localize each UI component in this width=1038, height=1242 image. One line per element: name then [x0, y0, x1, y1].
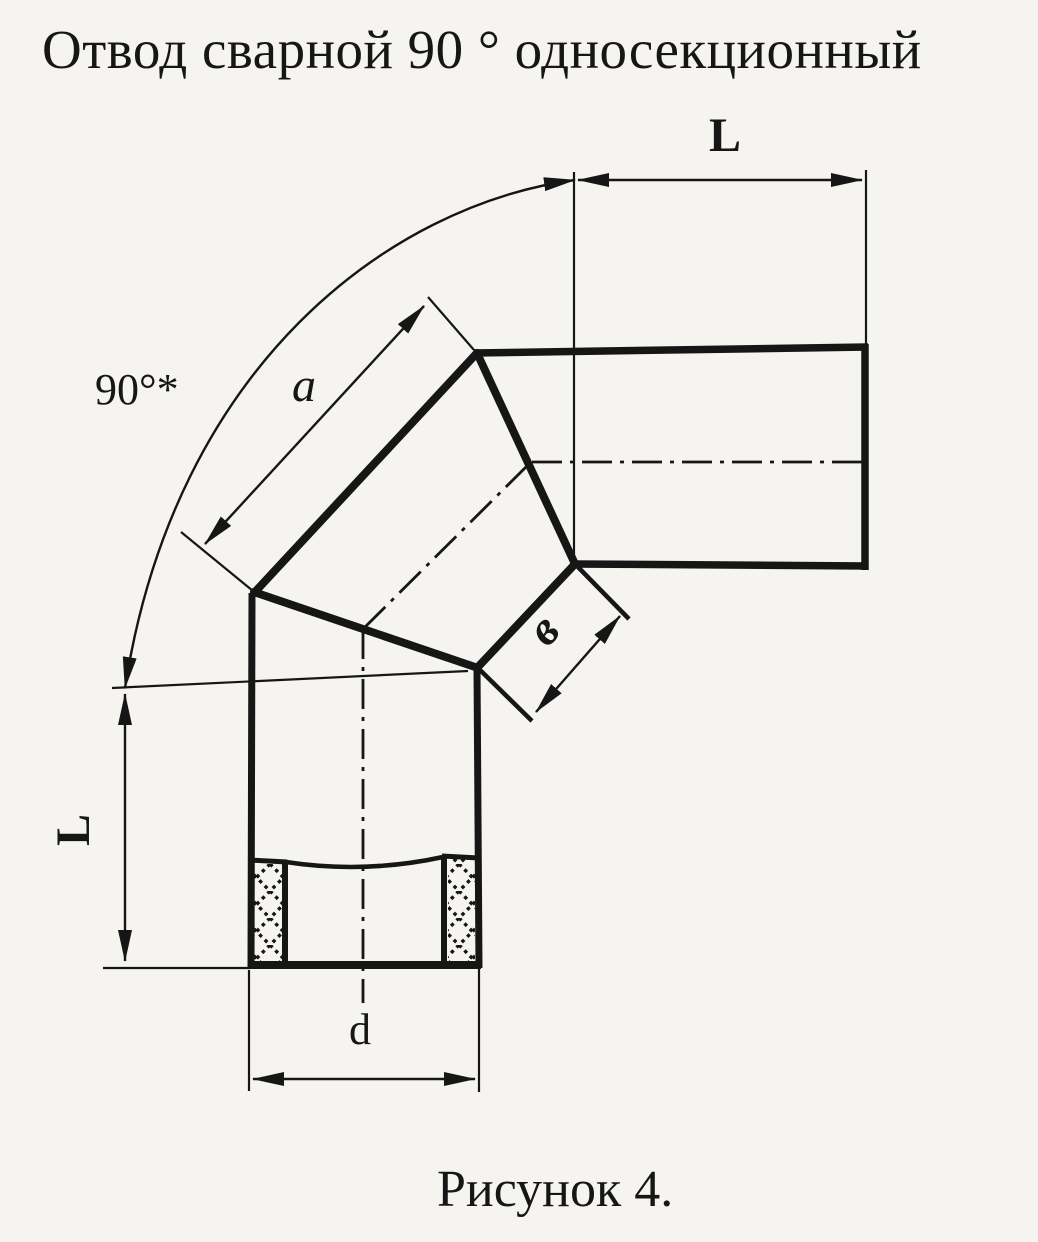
vertical-pipe-right-wall — [477, 668, 479, 968]
dim-line-a — [205, 306, 424, 544]
centerlines — [363, 462, 866, 1003]
angle-arc-90deg — [125, 180, 575, 688]
socket-top-right — [442, 856, 479, 858]
dimension-label-a: a — [292, 362, 316, 410]
socket-break-line — [286, 857, 443, 867]
dimension-extension-lines — [103, 170, 866, 1092]
weld-seam-upper — [477, 353, 575, 564]
dimension-label-L-left: L — [50, 814, 98, 846]
figure-caption: Рисунок 4. — [437, 1164, 673, 1216]
dimension-label-angle: 90°* — [95, 368, 179, 412]
ext-line-v-upper — [576, 565, 629, 619]
hatch-left — [254, 860, 282, 963]
coupling-socket — [250, 856, 479, 965]
page-title: Отвод сварной 90 ° односекционный — [42, 22, 922, 77]
scanned-drawing-page: Отвод сварной 90 ° односекционный L L 90… — [0, 0, 1038, 1242]
ext-line-a-bottom — [181, 532, 253, 591]
horizontal-pipe-outline — [474, 344, 868, 570]
horizontal-pipe-bottom-edge — [573, 564, 868, 566]
dimension-arrow-lines — [125, 180, 862, 1079]
ext-line-a-top — [428, 297, 474, 350]
ext-line-v-lower — [479, 669, 532, 721]
section-long-edge — [254, 353, 477, 593]
socket-top-left — [250, 860, 287, 862]
hatch-right — [448, 857, 475, 963]
dimension-label-L-top: L — [709, 112, 741, 160]
vertical-pipe-left-wall — [251, 593, 252, 968]
ext-line-from-lower-vertex — [112, 671, 468, 688]
dimension-label-d: d — [349, 1008, 371, 1052]
weld-seam-lower — [254, 592, 478, 668]
horizontal-pipe-top-edge — [474, 347, 868, 353]
elbow-diagonal-centerline — [364, 463, 530, 628]
